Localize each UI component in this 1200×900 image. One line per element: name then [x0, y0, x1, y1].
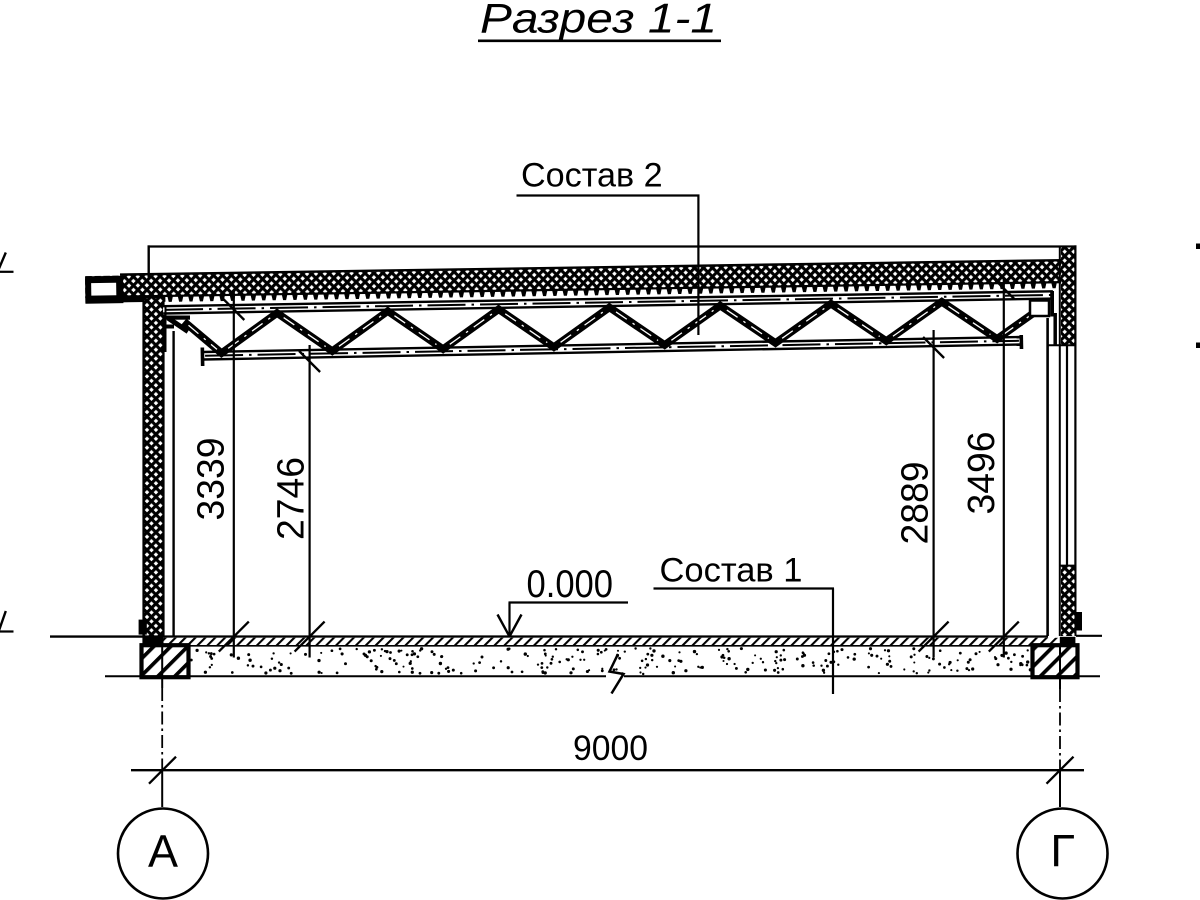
svg-text:Разрез 1-1: Разрез 1-1 — [480, 0, 717, 42]
svg-text:Состав 1: Состав 1 — [660, 552, 803, 590]
svg-text:0.000: 0.000 — [527, 563, 614, 606]
svg-text:3496: 3496 — [961, 432, 1003, 515]
svg-text:Г: Г — [1050, 826, 1074, 877]
svg-text:2889: 2889 — [895, 462, 937, 545]
svg-text:3339: 3339 — [191, 438, 233, 521]
svg-text:2746: 2746 — [271, 457, 313, 540]
svg-text:9000: 9000 — [573, 729, 648, 768]
svg-text:Состав 2: Состав 2 — [521, 157, 663, 195]
svg-text:А: А — [148, 826, 178, 877]
